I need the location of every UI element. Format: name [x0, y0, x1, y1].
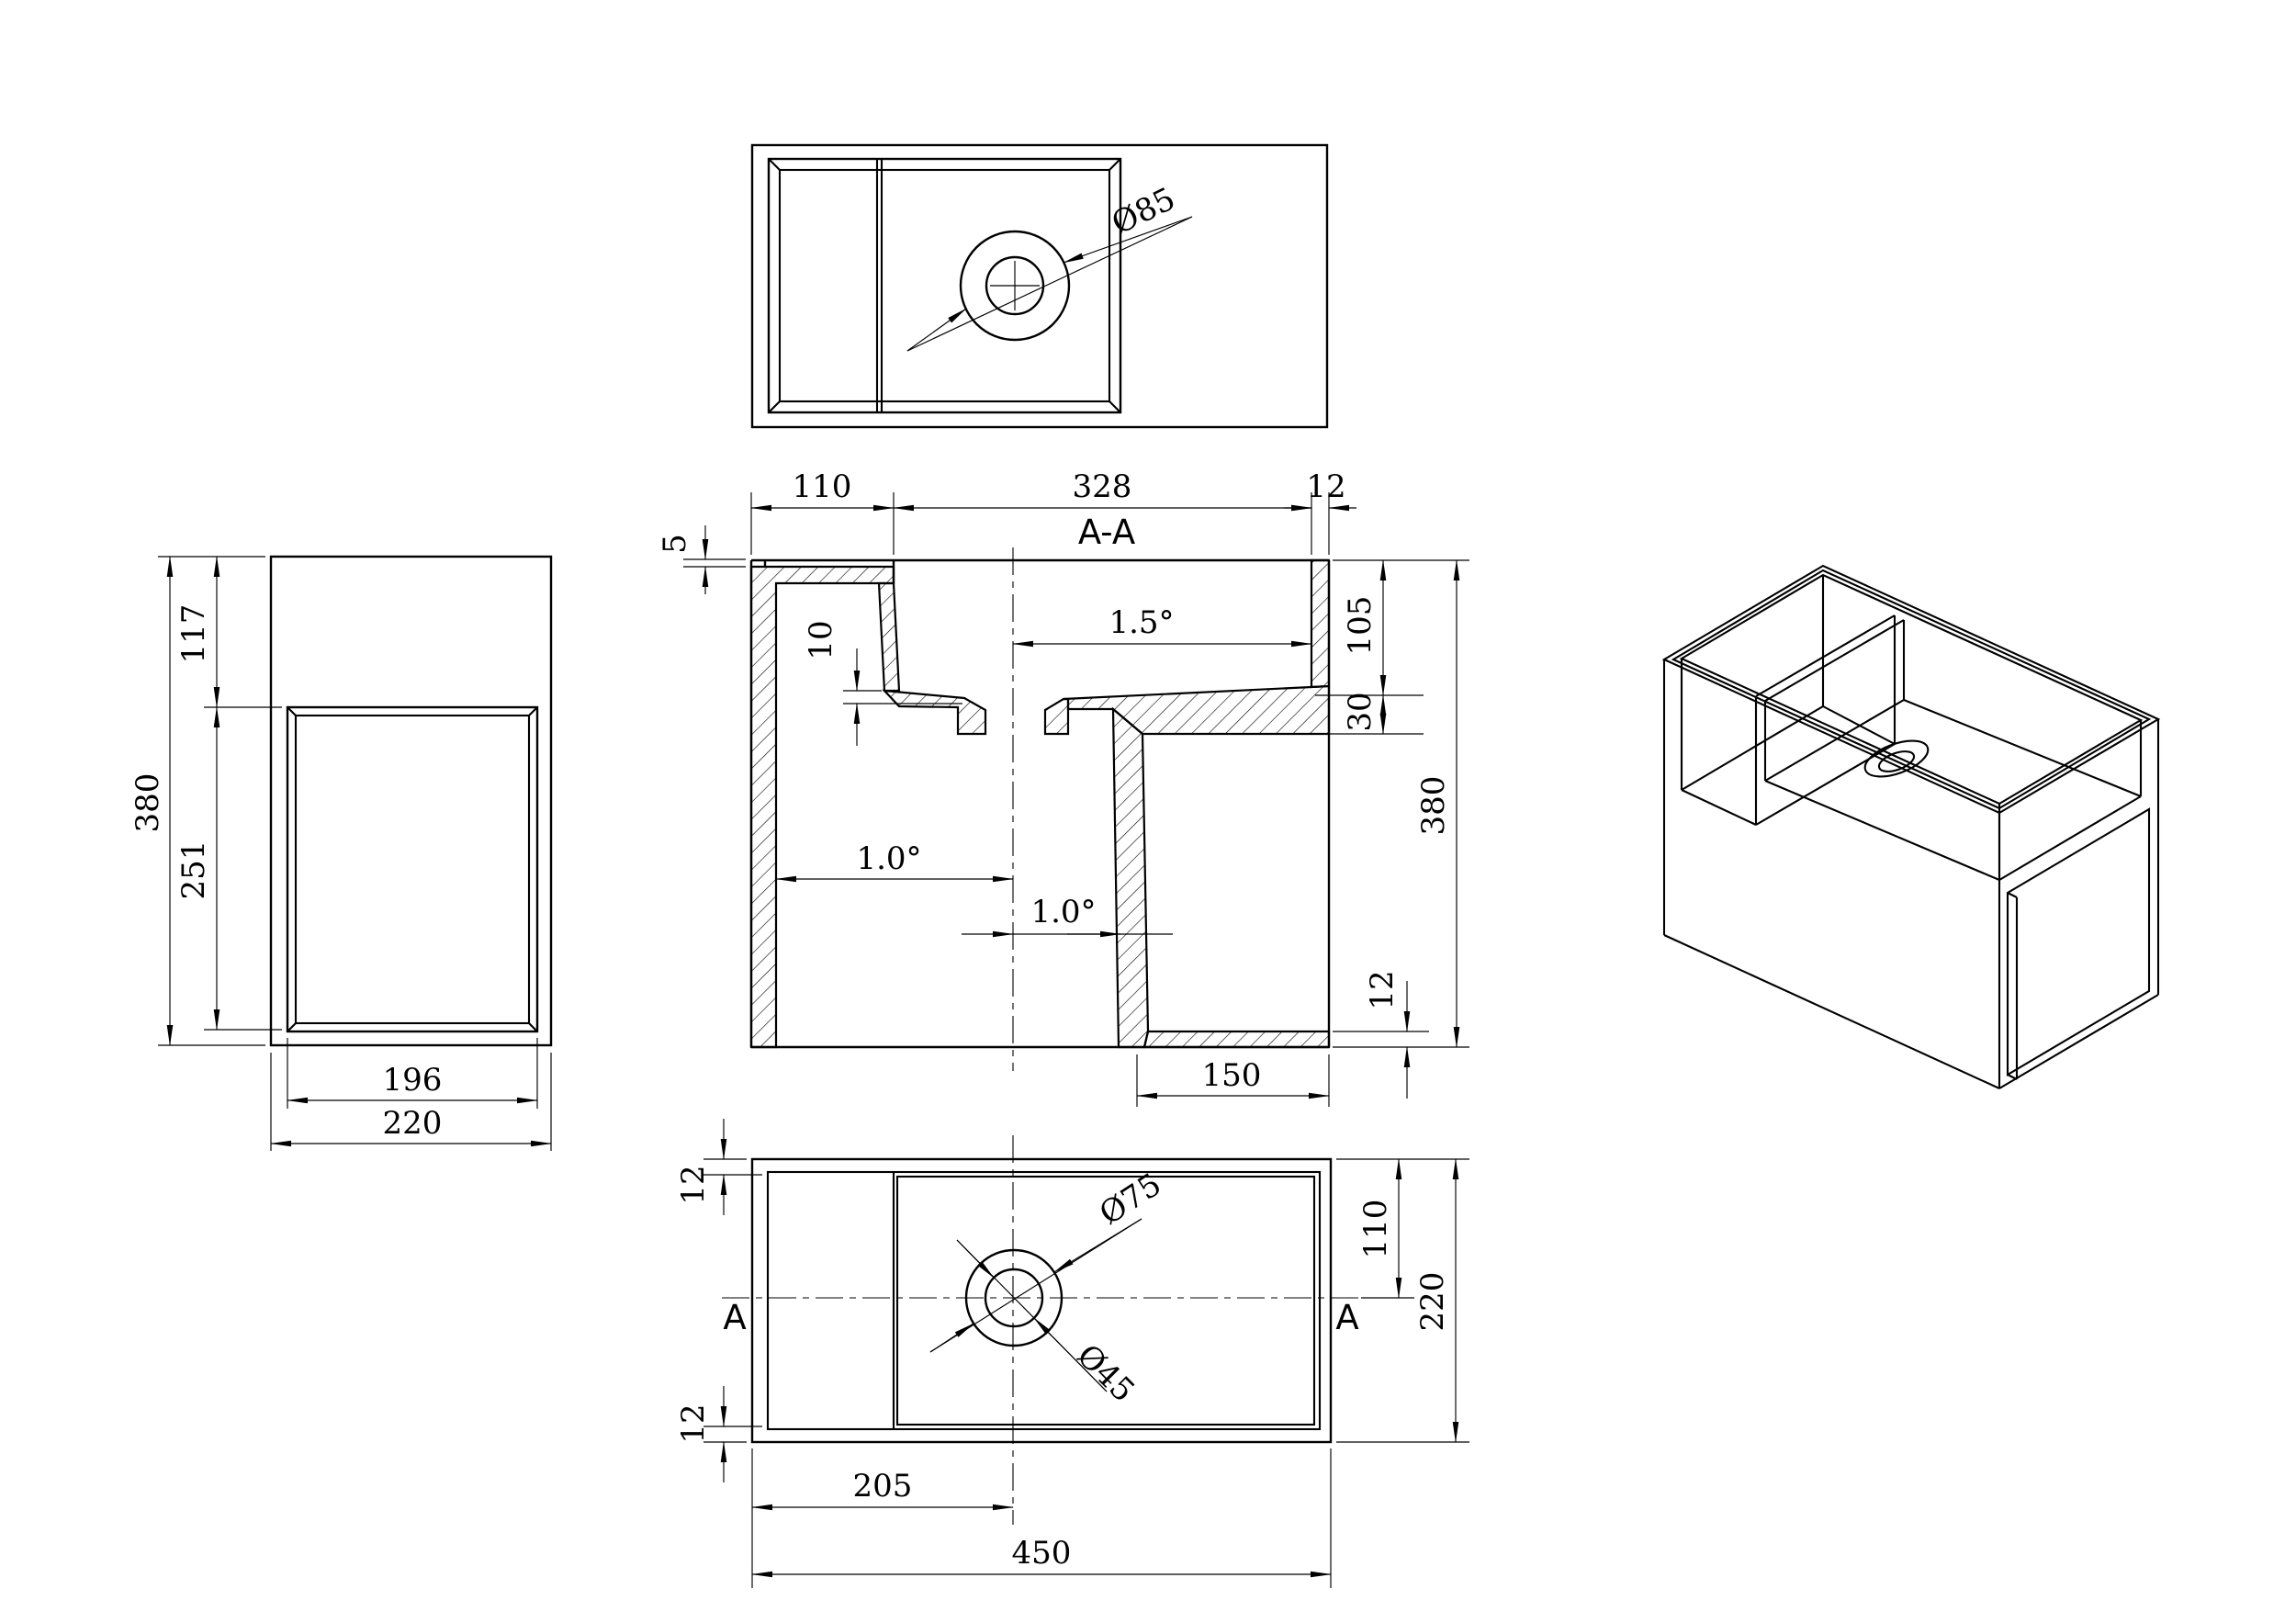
underside-view: Ø85	[752, 145, 1327, 427]
side-opening-outer	[287, 707, 537, 1031]
section-dim-12r: 12	[1364, 970, 1401, 1009]
section-dim-328: 328	[1073, 468, 1132, 505]
section-dim-105: 105	[1342, 596, 1379, 656]
section-view: 110 328 12 5 A-A 1.5° 10 1.0° 1.0°	[657, 468, 1469, 1107]
section-dim-150: 150	[1202, 1057, 1262, 1094]
section-dim-30: 30	[1342, 692, 1379, 731]
plan-dim-220: 220	[1414, 1272, 1451, 1332]
plan-drain-inner-label: Ø45	[1069, 1337, 1142, 1410]
drawing-sheet: Ø85	[0, 0, 2296, 1623]
section-bottom-sill	[1144, 1031, 1329, 1047]
section-dim-380: 380	[1415, 776, 1452, 836]
underside-diameter-leader: Ø85	[907, 181, 1192, 351]
side-dim-380: 380	[129, 773, 166, 833]
plan-dim-12-bottom: 12	[675, 1403, 712, 1443]
section-dim-5: 5	[657, 534, 693, 554]
section-right-wall	[1311, 560, 1329, 687]
iso-divider-wall	[1756, 615, 1904, 825]
underside-drain-diameter-label: Ø85	[1106, 181, 1180, 242]
cut-marker-left: A	[723, 1298, 746, 1337]
plan-dim-205: 205	[853, 1468, 913, 1505]
technical-drawing-canvas: Ø85	[0, 0, 2296, 1623]
section-floor-right	[1064, 686, 1329, 734]
side-opening-inner	[296, 716, 529, 1023]
underside-opening-inner	[780, 170, 1109, 401]
underside-opening-outer	[769, 159, 1120, 412]
iso-side-opening	[2008, 809, 2149, 1079]
plan-dim-110: 110	[1357, 1200, 1394, 1259]
cut-marker-right: A	[1335, 1298, 1358, 1337]
plan-dim-12-top: 12	[675, 1165, 712, 1204]
section-label: A-A	[1078, 513, 1135, 552]
isometric-view	[1664, 566, 2158, 1088]
side-dim-196: 196	[383, 1062, 443, 1099]
plan-drain-leaders: Ø75 Ø45	[930, 1167, 1168, 1410]
section-top-extension-lines	[683, 492, 1329, 567]
section-slope-basin: 1.5°	[1109, 604, 1174, 641]
section-dim-110: 110	[793, 468, 852, 505]
side-dim-117: 117	[175, 604, 212, 664]
side-outline	[271, 557, 551, 1045]
underside-corner-bevels	[770, 160, 1120, 411]
side-view: 117 251 380 196 220	[129, 557, 551, 1151]
section-mid-wall	[1113, 709, 1148, 1047]
plan-view: A A Ø75 Ø45	[675, 1119, 1469, 1588]
iso-left-compartment	[1682, 575, 1895, 825]
section-draft-mid: 1.0°	[1030, 894, 1096, 930]
side-dim-251: 251	[175, 840, 212, 900]
plan-dim-450: 450	[1012, 1535, 1072, 1572]
section-dim-12: 12	[1306, 468, 1345, 505]
section-dim-10: 10	[803, 620, 839, 659]
side-corner-bevels	[288, 708, 536, 1031]
section-floor-left	[884, 691, 985, 734]
plan-rim	[768, 1172, 1320, 1429]
side-dim-220: 220	[383, 1105, 443, 1142]
section-draft-left: 1.0°	[856, 840, 921, 877]
section-basin-left-wall	[879, 583, 899, 691]
section-drain-boss-right	[1045, 699, 1068, 734]
